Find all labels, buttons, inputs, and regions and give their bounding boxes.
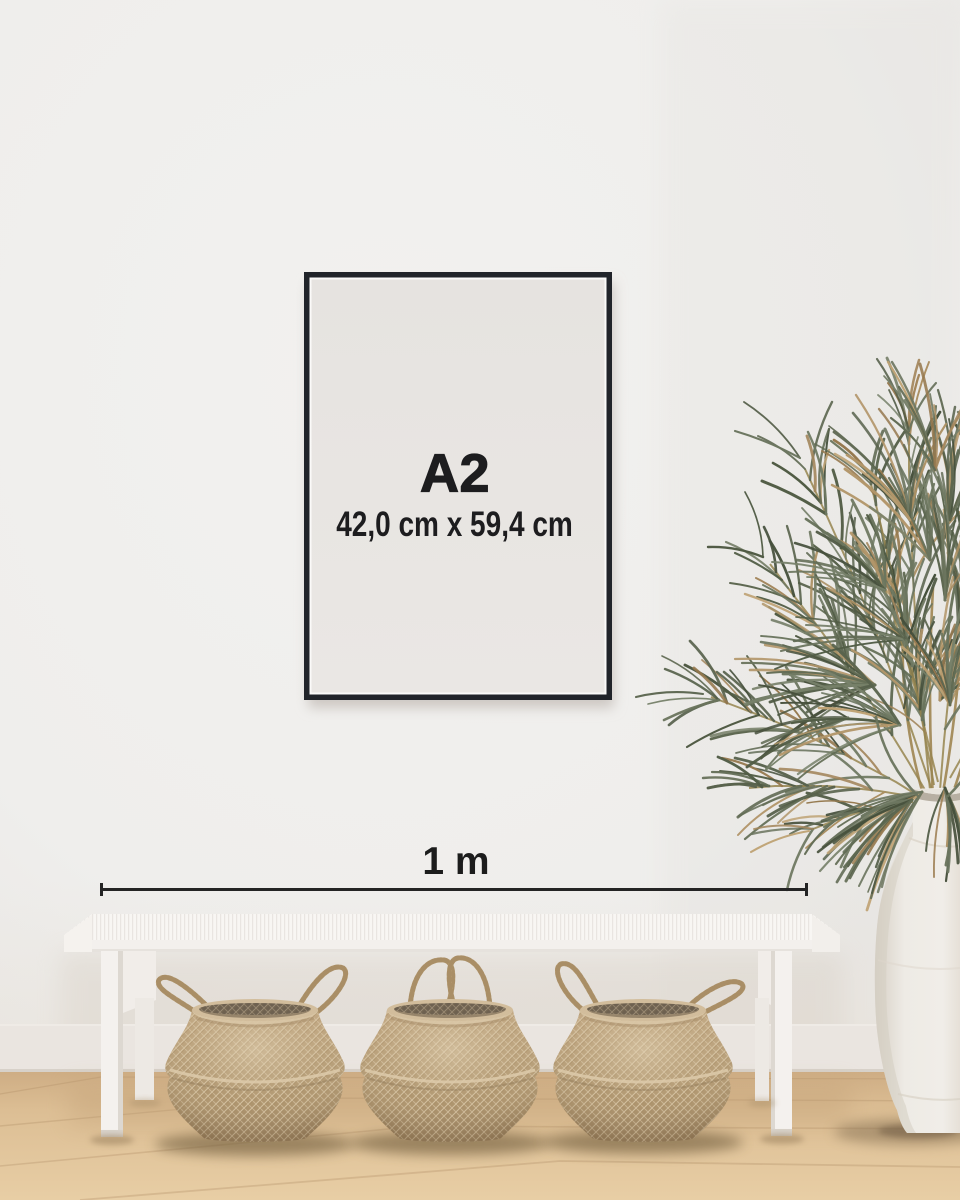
svg-text:A2: A2 <box>420 444 490 504</box>
svg-text:1 m: 1 m <box>422 840 489 883</box>
svg-text:42,0 cm x 59,4 cm: 42,0 cm x 59,4 cm <box>336 504 573 544</box>
